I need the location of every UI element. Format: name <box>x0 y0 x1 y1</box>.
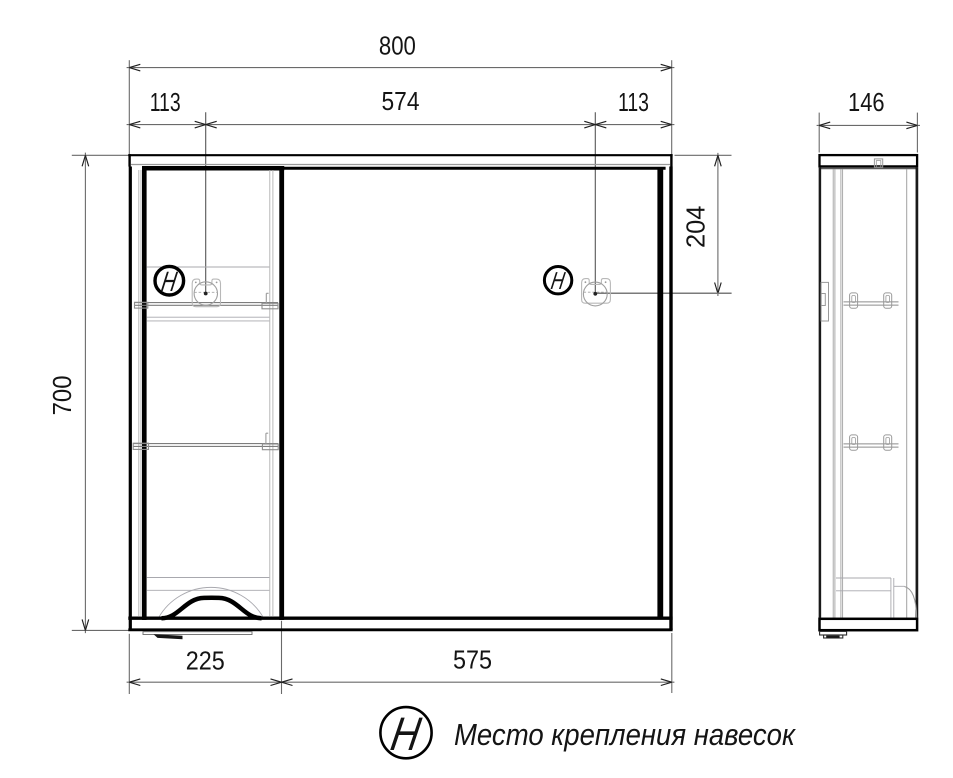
svg-text:700: 700 <box>47 375 77 415</box>
svg-text:225: 225 <box>186 645 225 675</box>
svg-text:113: 113 <box>618 87 649 117</box>
svg-text:575: 575 <box>453 644 492 674</box>
svg-text:H: H <box>387 708 425 761</box>
svg-text:574: 574 <box>382 86 420 116</box>
svg-text:113: 113 <box>150 87 181 117</box>
svg-text:146: 146 <box>848 87 885 117</box>
svg-text:204: 204 <box>681 206 711 249</box>
svg-text:Место крепления навесок: Место крепления навесок <box>454 717 796 752</box>
svg-text:800: 800 <box>379 31 416 61</box>
